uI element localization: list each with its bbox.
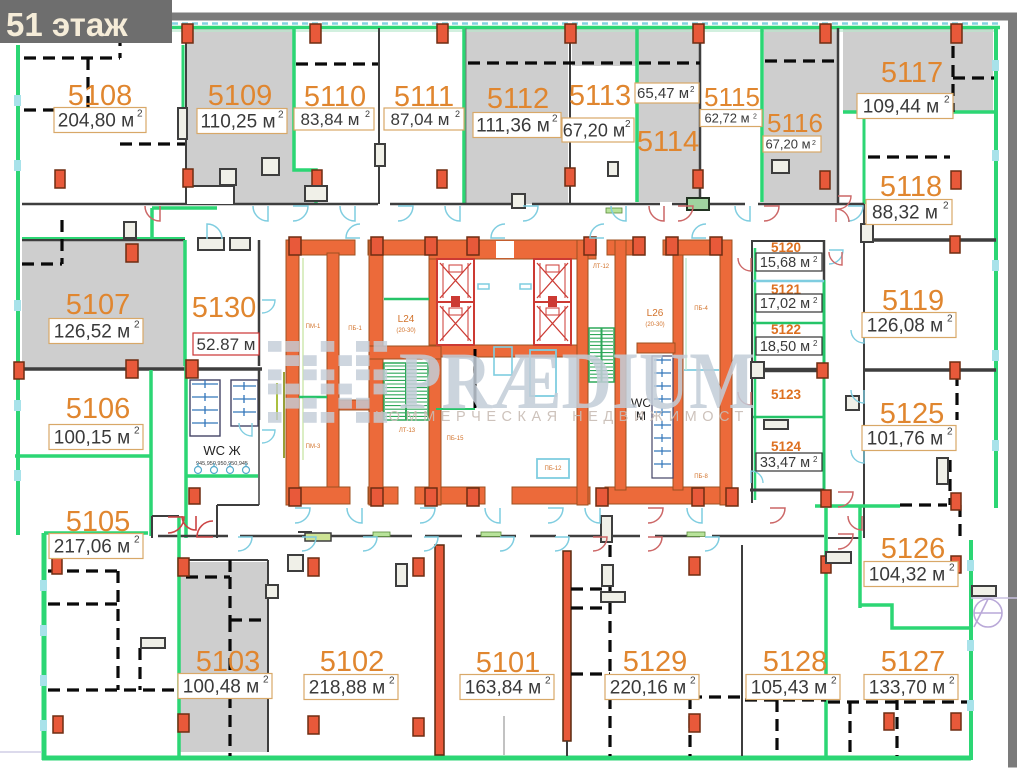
svg-text:5122: 5122	[771, 322, 801, 337]
svg-text:2: 2	[134, 426, 140, 437]
svg-text:ЛТ-13: ЛТ-13	[399, 428, 416, 434]
svg-text:15,68 м: 15,68 м	[760, 255, 810, 271]
svg-text:109,44 м: 109,44 м	[863, 97, 939, 118]
svg-text:2: 2	[813, 339, 818, 348]
svg-text:ПБ-15: ПБ-15	[447, 436, 465, 442]
svg-text:51 этаж: 51 этаж	[6, 6, 128, 43]
svg-text:2: 2	[813, 255, 818, 264]
svg-text:100,48 м: 100,48 м	[183, 677, 259, 698]
svg-text:2: 2	[552, 114, 558, 125]
svg-text:(20-30): (20-30)	[645, 322, 664, 328]
svg-text:2: 2	[812, 140, 816, 147]
svg-text:67,20 м: 67,20 м	[765, 137, 810, 152]
svg-text:126,08 м: 126,08 м	[867, 316, 943, 337]
svg-text:WC Ж: WC Ж	[203, 443, 240, 458]
svg-text:62,72 м: 62,72 м	[704, 111, 749, 126]
svg-text:2: 2	[690, 676, 696, 687]
svg-text:17,02 м: 17,02 м	[760, 296, 810, 312]
svg-text:111,36 м: 111,36 м	[476, 116, 550, 137]
svg-text:105,43 м: 105,43 м	[751, 678, 827, 699]
svg-text:2: 2	[263, 675, 269, 686]
svg-text:2: 2	[625, 119, 631, 130]
svg-text:220,16 м: 220,16 м	[610, 678, 686, 699]
svg-text:217,06 м: 217,06 м	[54, 537, 130, 558]
svg-text:2: 2	[753, 114, 757, 121]
svg-text:5115: 5115	[704, 82, 760, 112]
svg-text:5116: 5116	[767, 108, 823, 138]
svg-text:2: 2	[813, 455, 818, 464]
svg-text:2: 2	[813, 296, 818, 305]
svg-text:2: 2	[389, 676, 395, 687]
svg-text:104,32 м: 104,32 м	[869, 565, 945, 586]
svg-text:126,52 м: 126,52 м	[54, 322, 130, 343]
svg-text:5113: 5113	[569, 80, 631, 112]
svg-text:5129: 5129	[623, 646, 688, 678]
svg-text:65,47 м: 65,47 м	[637, 85, 689, 102]
svg-text:2: 2	[137, 109, 143, 120]
svg-text:100,15 м: 100,15 м	[54, 428, 130, 449]
svg-text:218,88 м: 218,88 м	[309, 678, 385, 699]
svg-text:(20-30): (20-30)	[396, 328, 415, 334]
svg-text:2: 2	[949, 676, 955, 687]
svg-text:5126: 5126	[881, 533, 946, 565]
svg-text:2: 2	[455, 109, 460, 119]
svg-text:5106: 5106	[66, 393, 131, 425]
svg-text:101,76 м: 101,76 м	[867, 429, 943, 450]
svg-text:2: 2	[949, 563, 955, 574]
svg-text:2: 2	[947, 314, 953, 325]
svg-text:133,70 м: 133,70 м	[869, 678, 945, 699]
svg-text:5114: 5114	[637, 126, 699, 158]
svg-text:945,950,950,950,945: 945,950,950,950,945	[196, 461, 248, 467]
svg-text:L24: L24	[398, 314, 415, 325]
svg-text:83,84 м: 83,84 м	[301, 110, 360, 129]
svg-text:ПБ-12: ПБ-12	[545, 466, 563, 472]
svg-text:88,32 м: 88,32 м	[872, 203, 938, 224]
svg-text:163,84 м: 163,84 м	[465, 678, 541, 699]
svg-text:204,80 м: 204,80 м	[58, 111, 134, 132]
svg-text:ПМ-1: ПМ-1	[306, 324, 321, 330]
svg-text:2: 2	[831, 676, 837, 687]
svg-text:L26: L26	[647, 308, 664, 319]
svg-text:18,50 м: 18,50 м	[760, 339, 810, 355]
svg-text:5117: 5117	[881, 57, 943, 89]
svg-text:2: 2	[944, 95, 950, 106]
svg-text:2: 2	[278, 110, 284, 121]
svg-text:5124: 5124	[771, 439, 802, 454]
svg-text:2: 2	[545, 676, 551, 687]
svg-text:33,47 м: 33,47 м	[760, 455, 810, 471]
svg-text:ПБ-4: ПБ-4	[694, 306, 708, 312]
svg-text:ПБ-8: ПБ-8	[694, 474, 708, 480]
svg-text:ЛТ-12: ЛТ-12	[593, 264, 610, 270]
svg-text:2: 2	[943, 201, 949, 212]
svg-text:2: 2	[365, 109, 370, 119]
svg-text:52.87 м: 52.87 м	[197, 335, 256, 354]
svg-text:ПБ-1: ПБ-1	[348, 326, 362, 332]
svg-text:5107: 5107	[66, 289, 131, 321]
svg-text:2: 2	[947, 427, 953, 438]
svg-text:5112: 5112	[487, 83, 549, 115]
svg-text:67,20 м: 67,20 м	[563, 120, 625, 140]
svg-text:110,25 м: 110,25 м	[200, 112, 275, 133]
svg-text:5123: 5123	[771, 387, 802, 402]
svg-text:5102: 5102	[320, 646, 385, 678]
svg-text:87,04 м: 87,04 м	[391, 110, 450, 129]
svg-text:2: 2	[134, 320, 140, 331]
svg-text:5109: 5109	[208, 80, 273, 112]
svg-text:5130: 5130	[192, 292, 257, 324]
svg-text:2: 2	[134, 535, 140, 546]
svg-text:ПМ-3: ПМ-3	[306, 444, 321, 450]
svg-text:5127: 5127	[881, 646, 946, 678]
svg-text:2: 2	[690, 85, 695, 94]
svg-text:5128: 5128	[763, 646, 828, 678]
svg-text:5118: 5118	[880, 171, 942, 203]
